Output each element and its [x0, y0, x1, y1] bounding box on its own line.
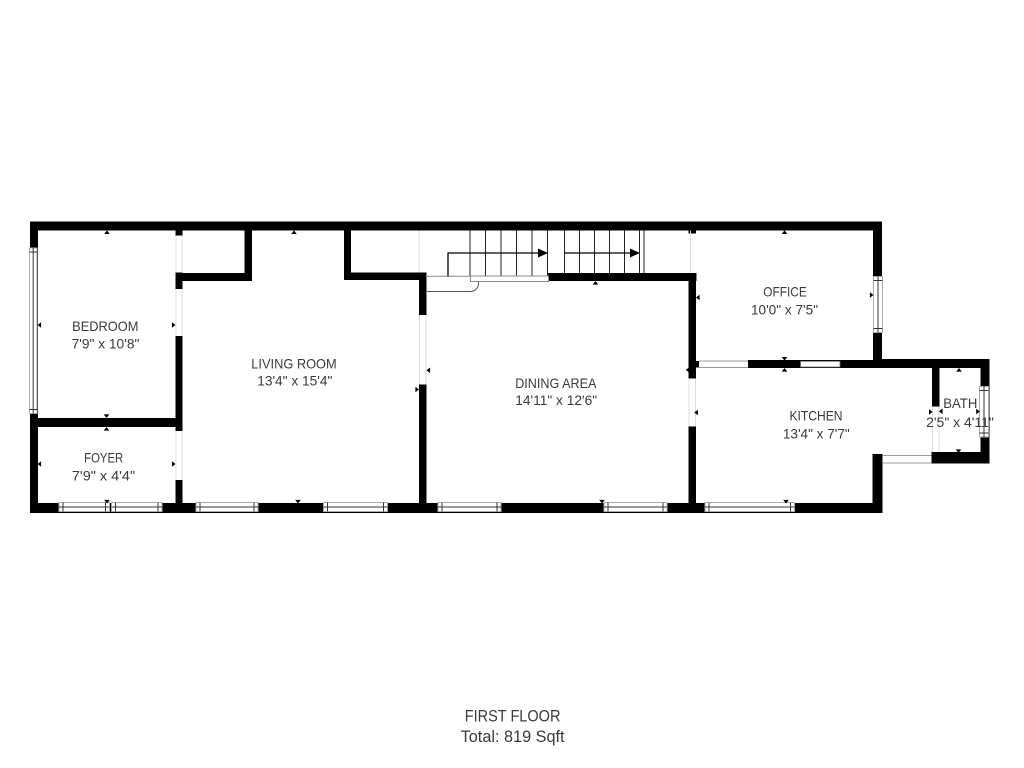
svg-text:13'4" x 7'7": 13'4" x 7'7": [783, 425, 850, 441]
svg-text:14'11" x 12'6": 14'11" x 12'6": [515, 392, 597, 408]
svg-text:Total: 819 Sqft: Total: 819 Sqft: [461, 727, 565, 746]
svg-text:BATH: BATH: [943, 395, 977, 411]
svg-text:BEDROOM: BEDROOM: [72, 318, 138, 334]
svg-text:7'9" x 10'8": 7'9" x 10'8": [72, 335, 140, 351]
svg-text:2'5" x 4'11": 2'5" x 4'11": [926, 414, 994, 430]
svg-text:FIRST FLOOR: FIRST FLOOR: [465, 706, 561, 725]
svg-text:7'9" x 4'4": 7'9" x 4'4": [72, 467, 135, 483]
svg-text:10'0" x 7'5": 10'0" x 7'5": [751, 302, 818, 318]
svg-text:KITCHEN: KITCHEN: [789, 407, 842, 423]
svg-text:13'4" x 15'4": 13'4" x 15'4": [257, 372, 332, 388]
svg-text:OFFICE: OFFICE: [763, 283, 807, 299]
svg-text:LIVING ROOM: LIVING ROOM: [251, 355, 336, 371]
svg-text:DINING AREA: DINING AREA: [515, 375, 597, 391]
svg-text:FOYER: FOYER: [84, 449, 123, 465]
